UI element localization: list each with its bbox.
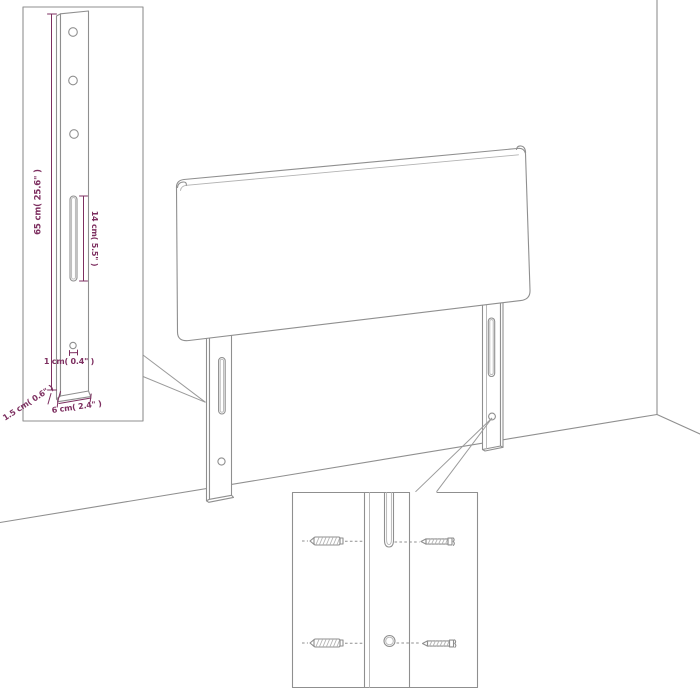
right-leg-slot [488, 318, 494, 377]
magnified-leg [57, 11, 91, 402]
left-leg-hole [218, 458, 225, 465]
dim-slot-label: 14 cm( 5.5" ) [90, 211, 99, 267]
right-leg-side-face [501, 293, 504, 447]
floor-line-right [657, 415, 700, 435]
left-leg [207, 328, 234, 502]
leg-slot [70, 196, 77, 281]
hardware-detail-inset [293, 493, 478, 688]
callout-line [416, 418, 493, 492]
dim-hole-label: 1 cm( 0.4" ) [44, 357, 94, 366]
leg-side-face [57, 14, 61, 399]
assembly-diagram: 65 cm( 25.6" ) 14 cm( 5.5" ) 1 cm( 0.4" … [0, 0, 700, 700]
right-leg-hole [489, 413, 496, 420]
dim-height-label: 65 cm( 25.6" ) [34, 169, 44, 235]
callout-line [143, 377, 206, 403]
leg-detail-inset: 65 cm( 25.6" ) 14 cm( 5.5" ) 1 cm( 0.4" … [1, 7, 143, 423]
callout-line [437, 418, 493, 492]
callout-lines-right-leg [416, 418, 493, 492]
headboard-face [176, 148, 530, 340]
leg-small-hole [70, 342, 76, 348]
leg-hole [69, 76, 78, 85]
left-leg-slot [219, 358, 226, 415]
diagram-canvas: 65 cm( 25.6" ) 14 cm( 5.5" ) 1 cm( 0.4" … [0, 0, 700, 700]
leg-hole [70, 130, 79, 139]
callout-line [143, 355, 206, 402]
leg-hole [69, 28, 78, 37]
callout-lines-left-leg [143, 355, 206, 402]
headboard-panel [176, 146, 530, 341]
